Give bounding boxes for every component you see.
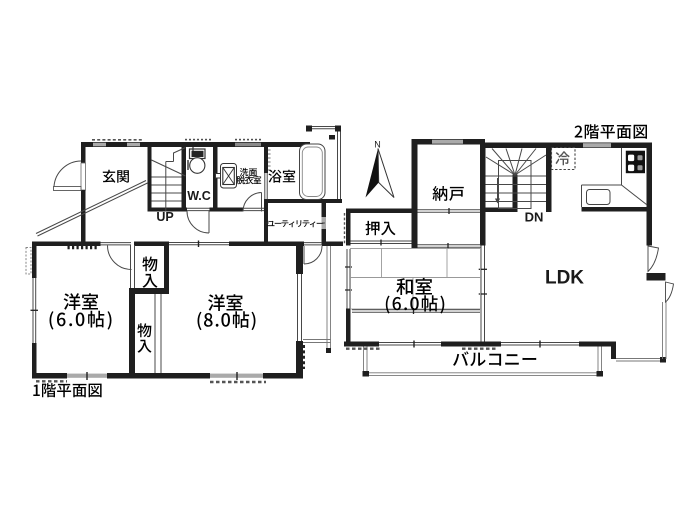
svg-text:UP: UP: [156, 210, 173, 224]
svg-text:DN: DN: [525, 210, 544, 225]
svg-text:LDK: LDK: [545, 268, 584, 289]
svg-text:N: N: [374, 140, 381, 150]
svg-text:W.C: W.C: [187, 189, 211, 203]
